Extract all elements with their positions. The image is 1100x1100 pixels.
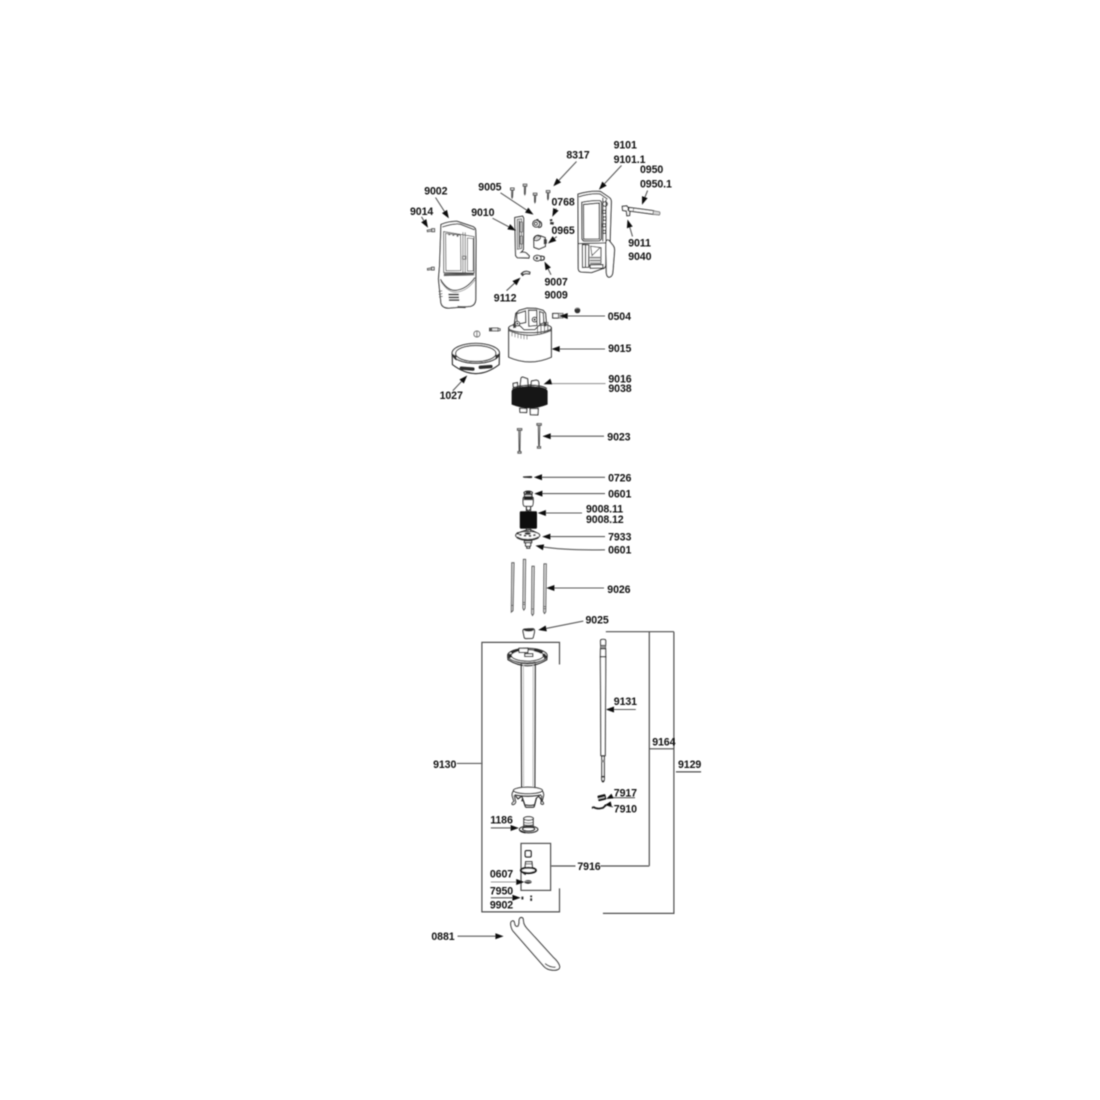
svg-text:9009: 9009 bbox=[545, 289, 568, 301]
svg-text:7910: 7910 bbox=[614, 804, 637, 816]
svg-text:9023: 9023 bbox=[607, 432, 630, 444]
svg-text:0768: 0768 bbox=[552, 197, 575, 209]
svg-text:9902: 9902 bbox=[490, 900, 513, 912]
svg-text:9129: 9129 bbox=[678, 759, 701, 771]
svg-text:0504: 0504 bbox=[608, 311, 631, 323]
svg-text:9002: 9002 bbox=[424, 185, 447, 197]
svg-text:9015: 9015 bbox=[608, 343, 631, 355]
svg-text:9040: 9040 bbox=[628, 251, 651, 263]
svg-text:1027: 1027 bbox=[440, 390, 463, 402]
svg-text:9025: 9025 bbox=[586, 615, 609, 627]
svg-text:9026: 9026 bbox=[607, 584, 630, 596]
svg-text:0601: 0601 bbox=[608, 545, 631, 557]
svg-text:0726: 0726 bbox=[608, 473, 631, 485]
svg-text:9007: 9007 bbox=[545, 277, 568, 289]
svg-text:9008.12: 9008.12 bbox=[586, 514, 624, 526]
svg-text:9130: 9130 bbox=[433, 759, 456, 771]
svg-text:8317: 8317 bbox=[566, 149, 589, 161]
svg-text:9164: 9164 bbox=[652, 736, 675, 748]
svg-text:1186: 1186 bbox=[490, 815, 513, 827]
svg-text:9112: 9112 bbox=[494, 293, 517, 305]
svg-text:9131: 9131 bbox=[614, 696, 637, 708]
svg-text:7933: 7933 bbox=[608, 531, 631, 543]
svg-text:9011: 9011 bbox=[628, 238, 651, 250]
svg-text:9101: 9101 bbox=[614, 139, 637, 151]
svg-text:0950: 0950 bbox=[640, 164, 663, 176]
svg-text:9005: 9005 bbox=[478, 182, 501, 194]
svg-text:7950: 7950 bbox=[490, 886, 513, 898]
svg-text:9010: 9010 bbox=[471, 207, 494, 219]
svg-text:9014: 9014 bbox=[410, 206, 433, 218]
svg-text:9038: 9038 bbox=[608, 383, 631, 395]
svg-text:0950.1: 0950.1 bbox=[640, 179, 672, 191]
svg-text:7916: 7916 bbox=[577, 861, 600, 873]
svg-text:0601: 0601 bbox=[608, 488, 631, 500]
svg-text:0607: 0607 bbox=[490, 868, 513, 880]
svg-text:0965: 0965 bbox=[552, 225, 575, 237]
svg-text:0881: 0881 bbox=[431, 931, 454, 943]
